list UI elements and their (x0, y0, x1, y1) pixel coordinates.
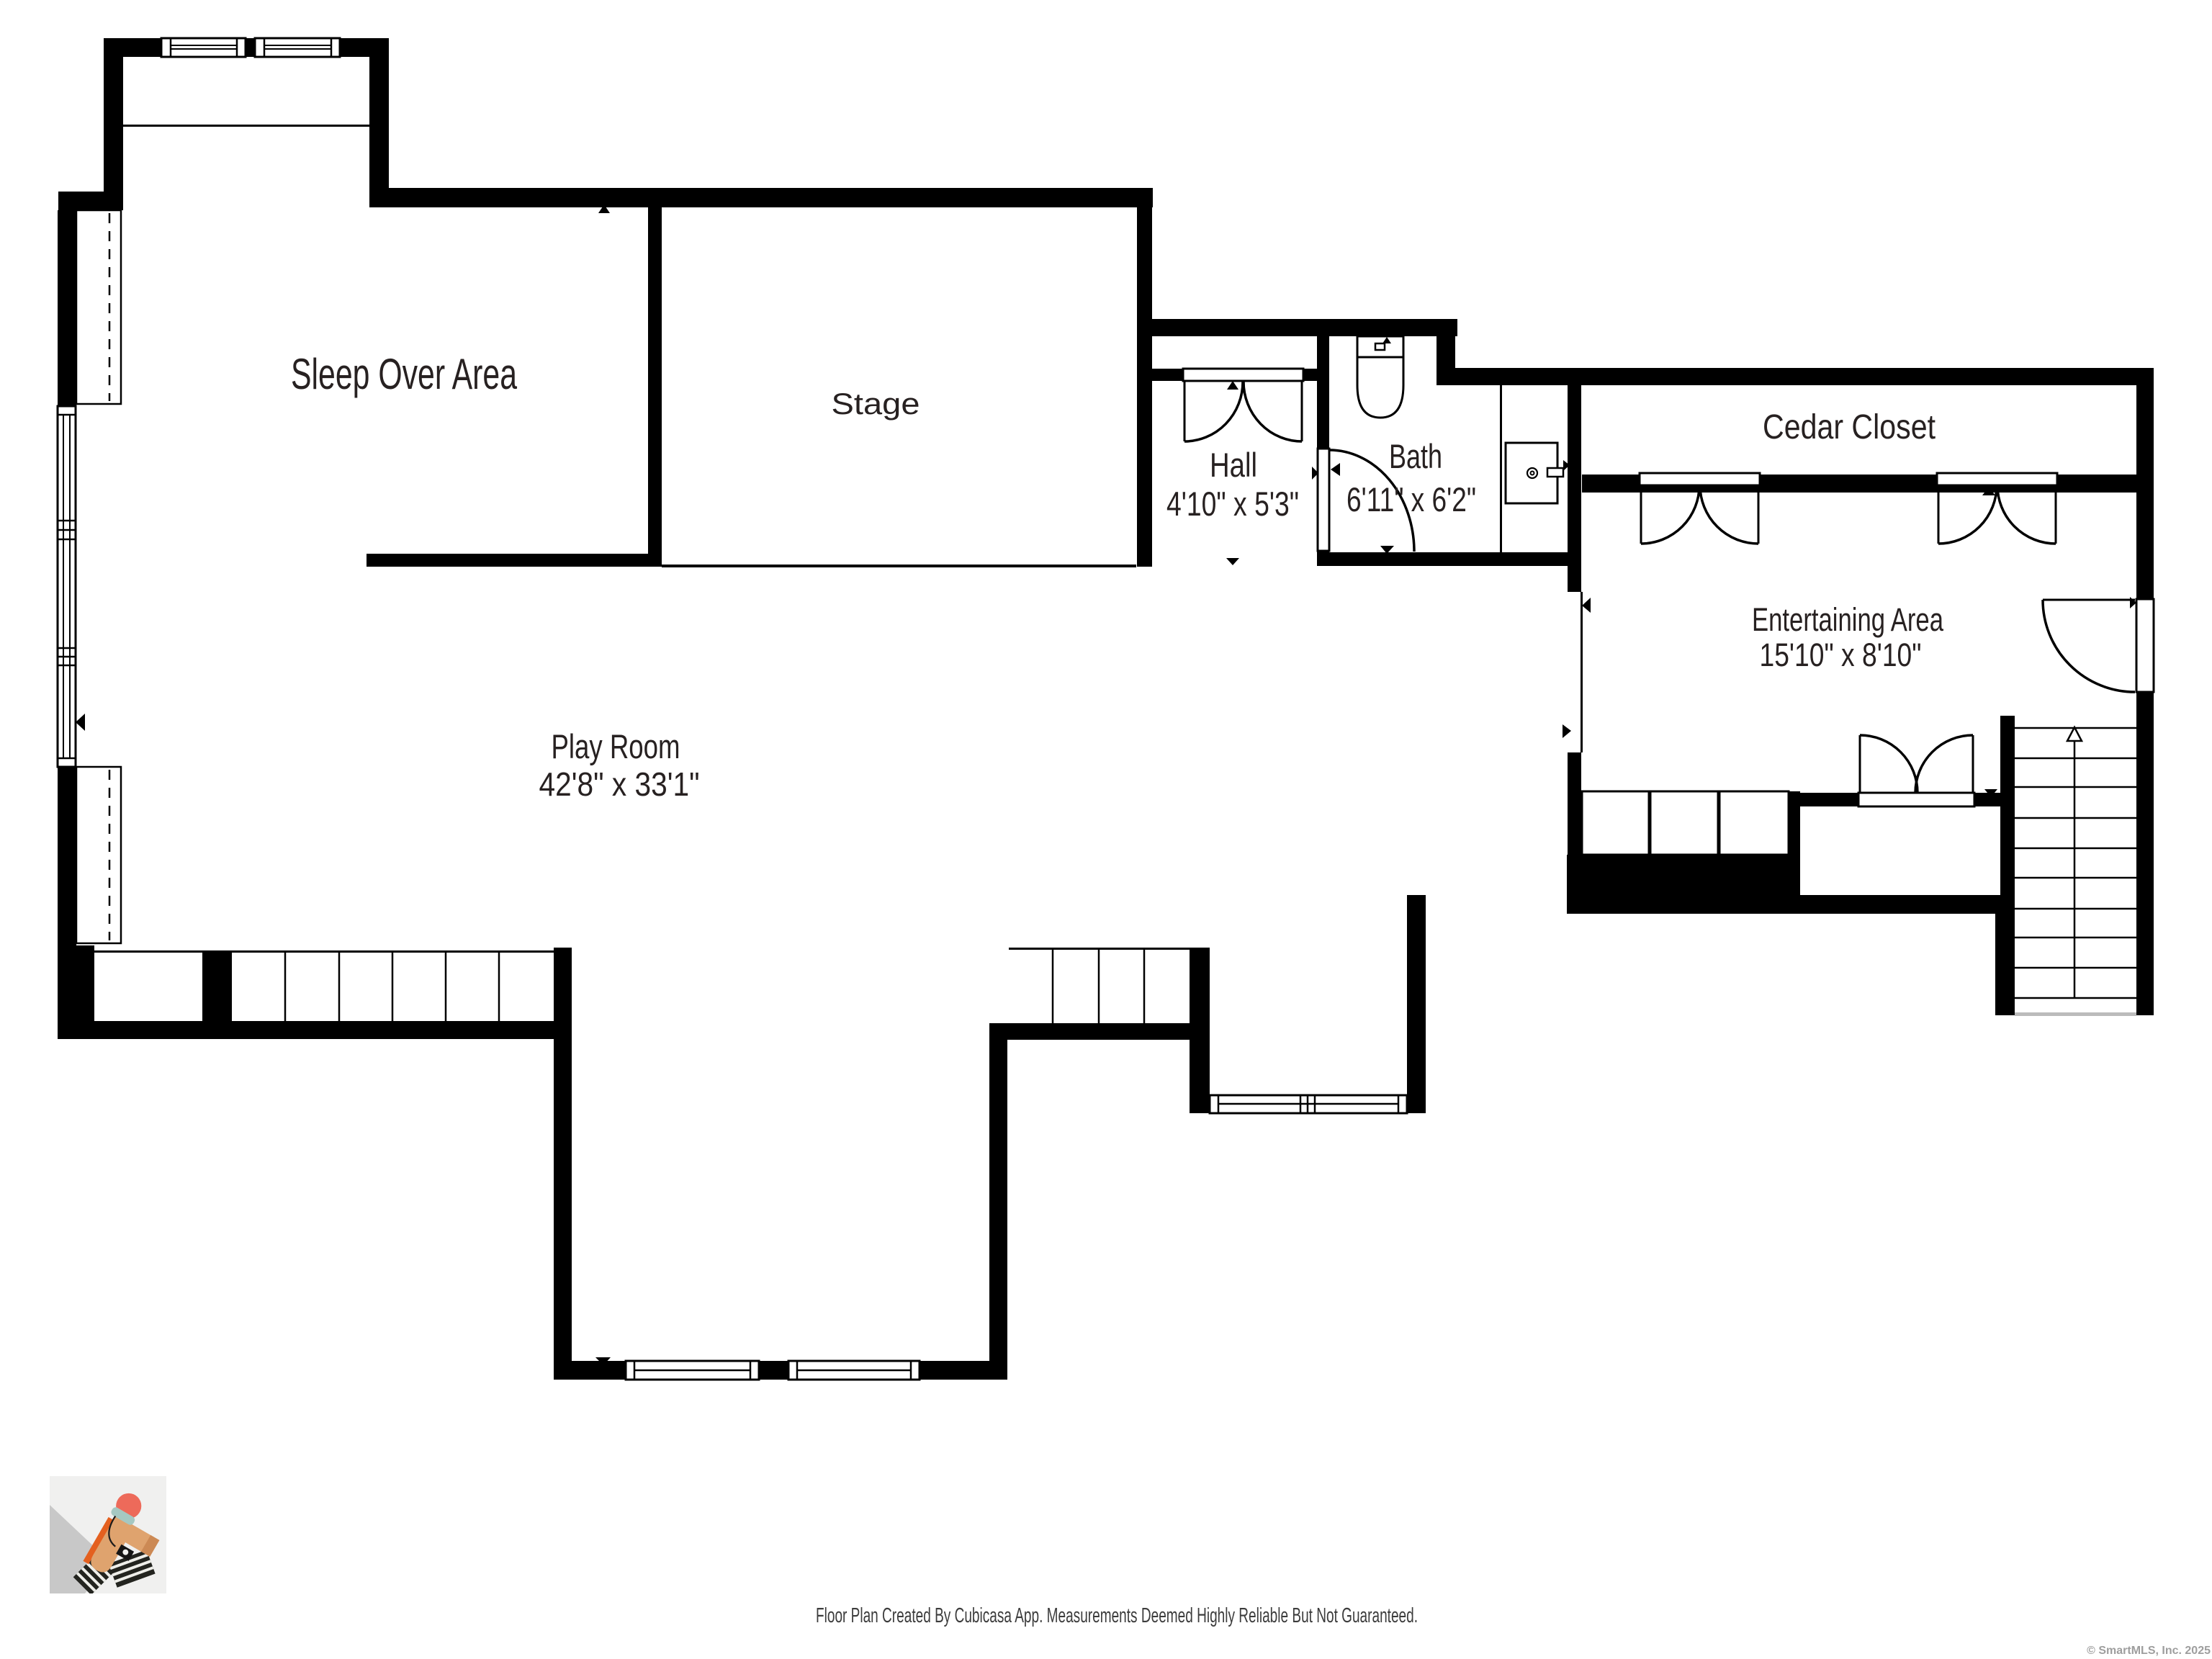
svg-text:Play Room: Play Room (552, 727, 680, 765)
svg-text:Stage: Stage (832, 387, 920, 421)
svg-text:6'11" x 6'2": 6'11" x 6'2" (1346, 480, 1476, 518)
svg-text:Cedar Closet: Cedar Closet (1763, 408, 1935, 446)
svg-text:Bath: Bath (1389, 437, 1442, 475)
svg-text:15'10" x 8'10": 15'10" x 8'10" (1760, 637, 1922, 673)
svg-text:Sleep Over Area: Sleep Over Area (291, 350, 517, 398)
svg-text:© SmartMLS, Inc. 2025: © SmartMLS, Inc. 2025 (2087, 1645, 2211, 1657)
svg-text:Floor Plan Created By Cubicasa: Floor Plan Created By Cubicasa App. Meas… (816, 1604, 1418, 1627)
svg-text:42'8" x 33'1": 42'8" x 33'1" (539, 765, 700, 803)
svg-text:4'10" x 5'3": 4'10" x 5'3" (1166, 485, 1299, 523)
svg-text:Entertaining Area: Entertaining Area (1752, 601, 1944, 638)
svg-text:Hall: Hall (1210, 446, 1257, 484)
